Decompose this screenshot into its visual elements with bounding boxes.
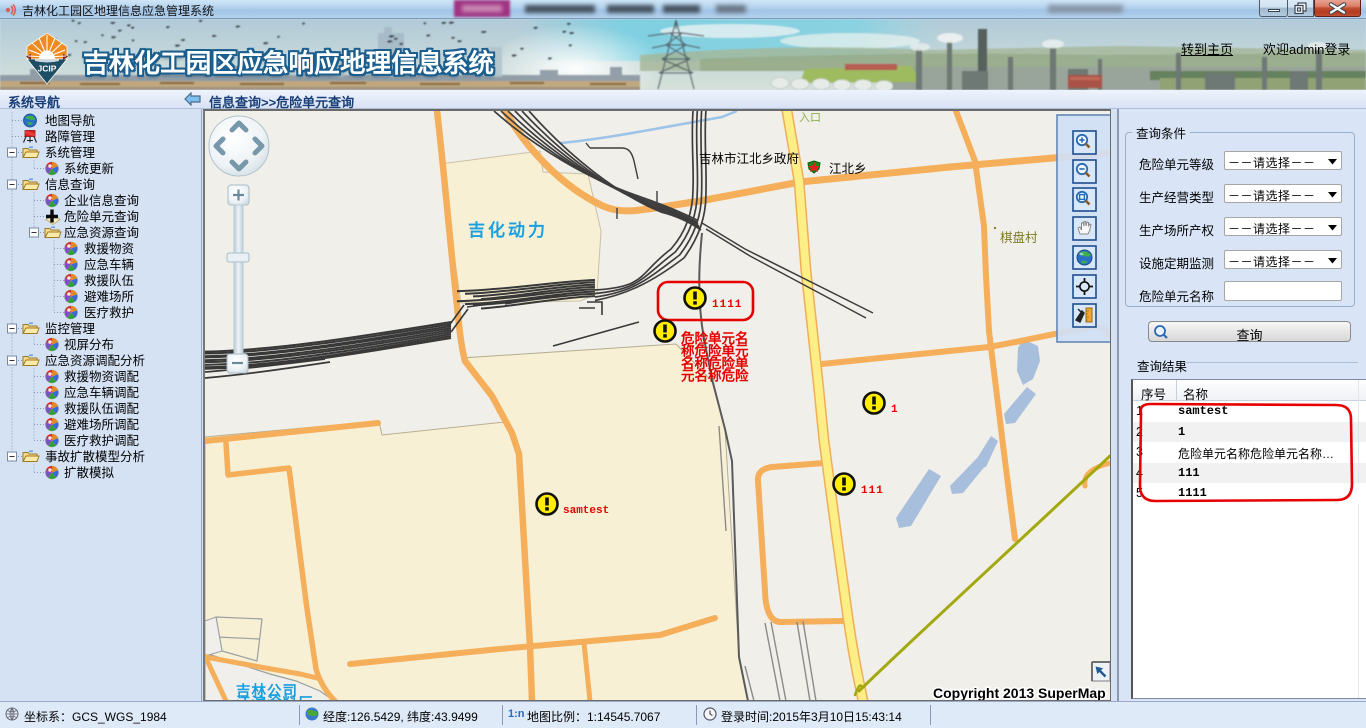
svg-text:视屏分布: 视屏分布 (64, 337, 114, 352)
svg-text:Copyright 2013 SuperMap: Copyright 2013 SuperMap (933, 685, 1106, 701)
svg-text:元名称危险: 元名称危险 (681, 368, 749, 384)
svg-text:应急资源查询: 应急资源查询 (64, 225, 139, 240)
svg-text:救援物资调配: 救援物资调配 (64, 369, 140, 384)
svg-text:路障管理: 路障管理 (45, 129, 96, 144)
svg-text:应急车辆: 应急车辆 (84, 257, 134, 272)
svg-text:救援队伍: 救援队伍 (84, 273, 134, 288)
svg-text:避难场所调配: 避难场所调配 (64, 418, 140, 432)
svg-text:应急车辆调配: 应急车辆调配 (64, 385, 140, 400)
svg-text:系统管理: 系统管理 (45, 145, 96, 160)
svg-text:1111: 1111 (712, 299, 742, 311)
svg-text:医疗救护: 医疗救护 (84, 305, 134, 320)
svg-text:应急资源调配分析: 应急资源调配分析 (45, 353, 145, 368)
svg-text:1: 1 (891, 404, 899, 416)
svg-text:监控管理: 监控管理 (45, 321, 96, 336)
svg-text:samtest: samtest (563, 505, 609, 517)
svg-text:扩散模拟: 扩散模拟 (64, 465, 115, 480)
svg-text:吉化动力: 吉化动力 (468, 220, 548, 240)
svg-text:地图导航: 地图导航 (45, 113, 96, 128)
svg-text:救援物资: 救援物资 (84, 241, 134, 256)
svg-text:系统更新: 系统更新 (64, 161, 114, 176)
svg-text:江滨涂料厂: 江滨涂料厂 (236, 694, 314, 701)
svg-text:企业信息查询: 企业信息查询 (64, 193, 139, 208)
svg-text:江北乡: 江北乡 (829, 162, 867, 176)
svg-text:信息查询: 信息查询 (45, 177, 95, 192)
svg-text:救援队伍调配: 救援队伍调配 (64, 401, 140, 416)
svg-text:事故扩散模型分析: 事故扩散模型分析 (45, 449, 145, 464)
svg-text:危险单元查询: 危险单元查询 (64, 209, 139, 224)
svg-text:JCIP: JCIP (38, 64, 57, 74)
svg-text:吉林市江北乡政府: 吉林市江北乡政府 (699, 151, 799, 166)
svg-text:棋盘村: 棋盘村 (1000, 230, 1038, 245)
svg-text:医疗救护调配: 医疗救护调配 (64, 433, 140, 448)
svg-text:避难场所: 避难场所 (84, 290, 134, 304)
svg-text:入口: 入口 (799, 112, 821, 124)
svg-text:111: 111 (861, 485, 884, 497)
